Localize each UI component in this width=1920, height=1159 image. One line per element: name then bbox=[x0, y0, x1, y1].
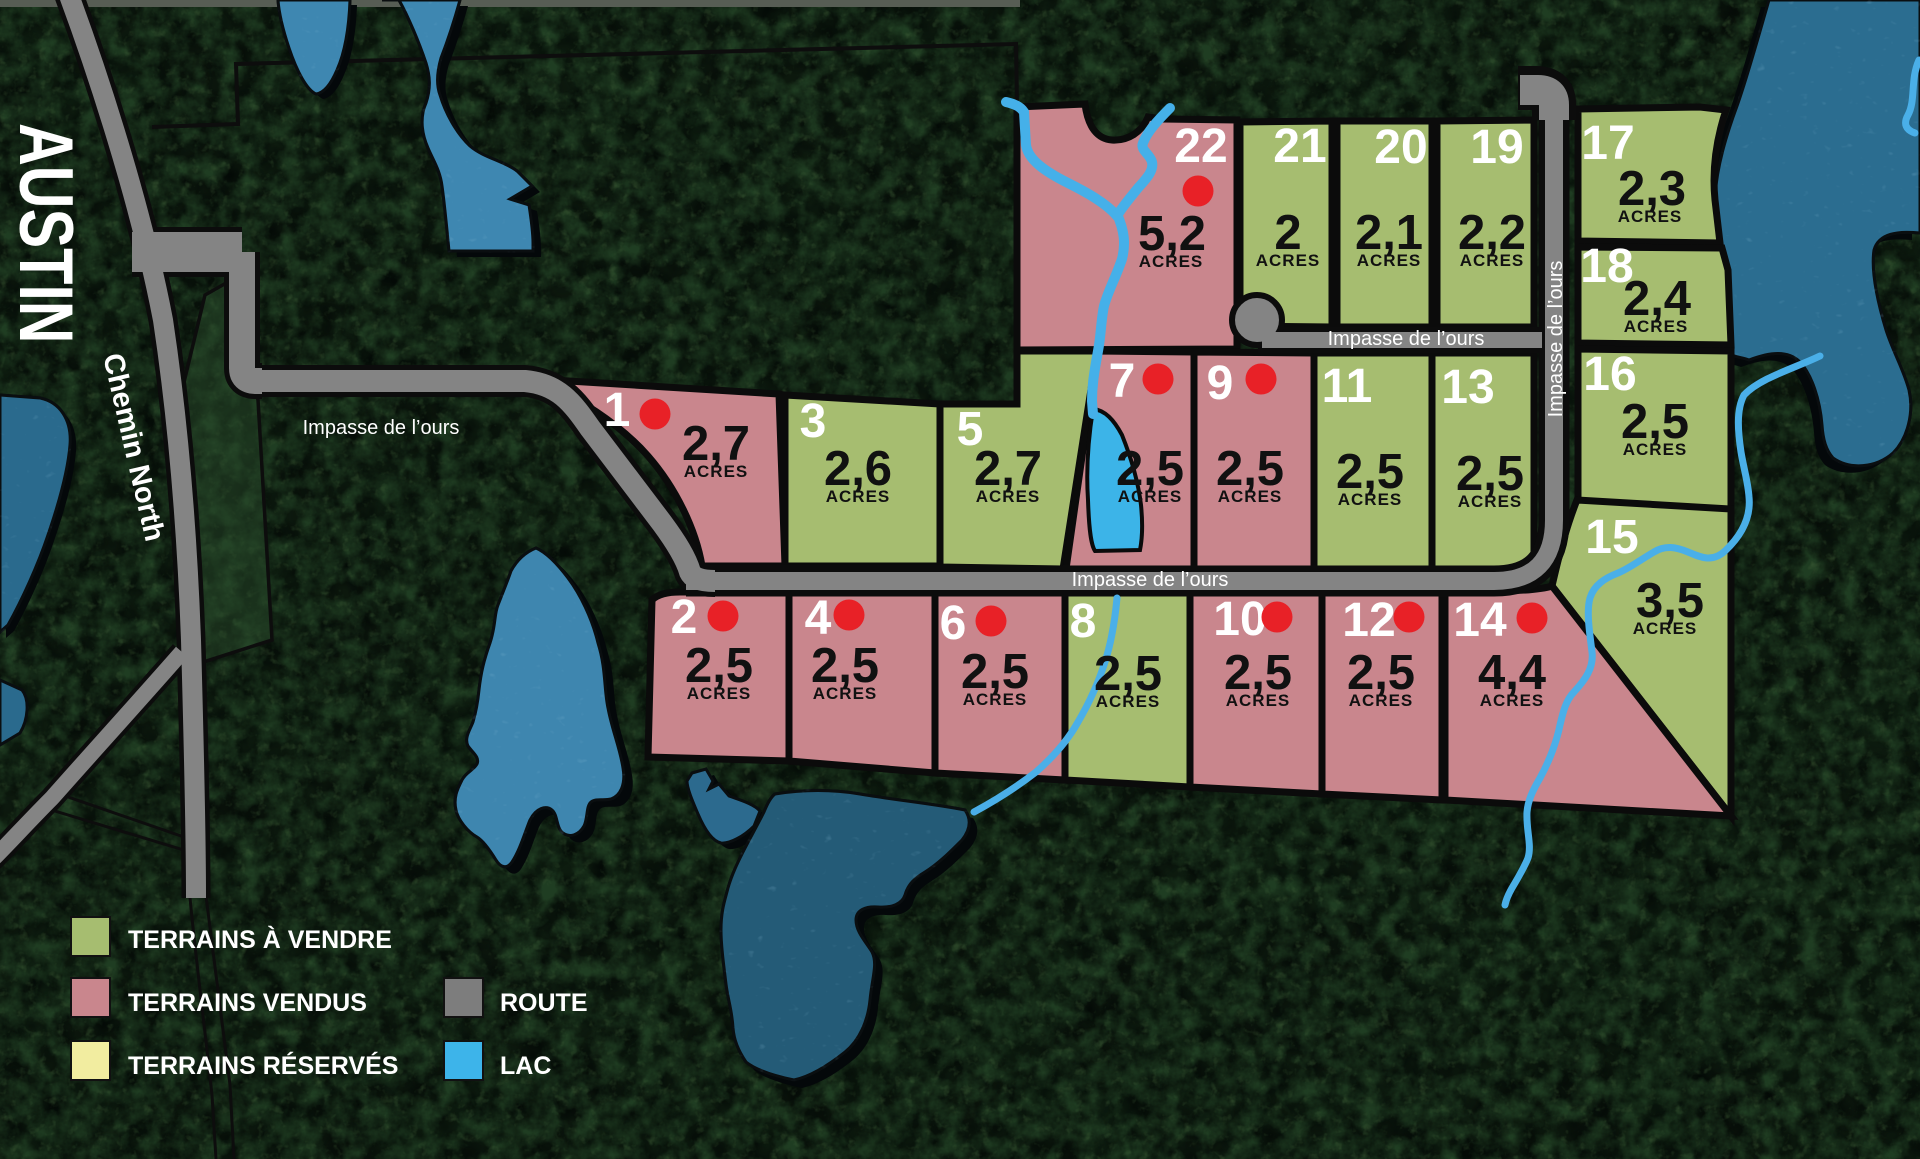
svg-text:ACRES: ACRES bbox=[687, 684, 752, 703]
svg-text:2: 2 bbox=[671, 591, 698, 644]
svg-text:ACRES: ACRES bbox=[1624, 317, 1689, 336]
svg-text:TERRAINS RÉSERVÉS: TERRAINS RÉSERVÉS bbox=[128, 1051, 398, 1080]
svg-text:13: 13 bbox=[1441, 361, 1494, 414]
svg-text:TERRAINS À VENDRE: TERRAINS À VENDRE bbox=[128, 925, 392, 954]
svg-text:ACRES: ACRES bbox=[1118, 487, 1183, 506]
svg-text:ACRES: ACRES bbox=[1623, 440, 1688, 459]
svg-text:LAC: LAC bbox=[500, 1052, 551, 1080]
svg-text:Impasse de l’ours: Impasse de l’ours bbox=[1072, 569, 1229, 591]
svg-text:19: 19 bbox=[1470, 121, 1523, 174]
svg-text:Impasse de l’ours: Impasse de l’ours bbox=[303, 417, 460, 439]
svg-text:ACRES: ACRES bbox=[826, 487, 891, 506]
svg-text:20: 20 bbox=[1374, 121, 1427, 174]
svg-text:10: 10 bbox=[1213, 593, 1266, 646]
svg-text:ACRES: ACRES bbox=[976, 487, 1041, 506]
svg-text:6: 6 bbox=[940, 597, 967, 650]
svg-text:ACRES: ACRES bbox=[1139, 252, 1204, 271]
svg-text:12: 12 bbox=[1342, 594, 1395, 647]
svg-text:ACRES: ACRES bbox=[1096, 692, 1161, 711]
svg-text:ACRES: ACRES bbox=[1338, 490, 1403, 509]
svg-text:1: 1 bbox=[604, 384, 631, 437]
svg-text:7: 7 bbox=[1109, 355, 1136, 408]
svg-text:8: 8 bbox=[1070, 595, 1097, 648]
svg-text:ACRES: ACRES bbox=[1480, 691, 1545, 710]
svg-text:ACRES: ACRES bbox=[1349, 691, 1414, 710]
svg-text:ACRES: ACRES bbox=[813, 684, 878, 703]
svg-text:ACRES: ACRES bbox=[1633, 619, 1698, 638]
svg-text:Impasse de l’ours: Impasse de l’ours bbox=[1545, 261, 1567, 418]
svg-text:11: 11 bbox=[1322, 360, 1373, 413]
svg-text:ACRES: ACRES bbox=[1618, 207, 1683, 226]
svg-text:ROUTE: ROUTE bbox=[500, 989, 588, 1017]
svg-text:4: 4 bbox=[805, 592, 832, 645]
svg-text:Impasse de l’ours: Impasse de l’ours bbox=[1328, 328, 1485, 350]
svg-text:ACRES: ACRES bbox=[1226, 691, 1291, 710]
svg-text:9: 9 bbox=[1207, 357, 1234, 410]
svg-text:22: 22 bbox=[1174, 120, 1227, 173]
svg-text:3: 3 bbox=[800, 395, 827, 448]
svg-text:14: 14 bbox=[1453, 594, 1507, 647]
svg-text:16: 16 bbox=[1583, 348, 1636, 401]
svg-text:15: 15 bbox=[1585, 511, 1638, 564]
svg-text:ACRES: ACRES bbox=[1256, 251, 1321, 270]
svg-text:ACRES: ACRES bbox=[1357, 251, 1422, 270]
svg-text:AUSTIN: AUSTIN bbox=[3, 123, 88, 344]
svg-text:ACRES: ACRES bbox=[684, 462, 749, 481]
svg-text:ACRES: ACRES bbox=[1458, 492, 1523, 511]
svg-text:ACRES: ACRES bbox=[1218, 487, 1283, 506]
svg-text:ACRES: ACRES bbox=[1460, 251, 1525, 270]
svg-text:21: 21 bbox=[1273, 120, 1326, 173]
svg-text:ACRES: ACRES bbox=[963, 690, 1028, 709]
svg-text:TERRAINS VENDUS: TERRAINS VENDUS bbox=[128, 989, 367, 1017]
